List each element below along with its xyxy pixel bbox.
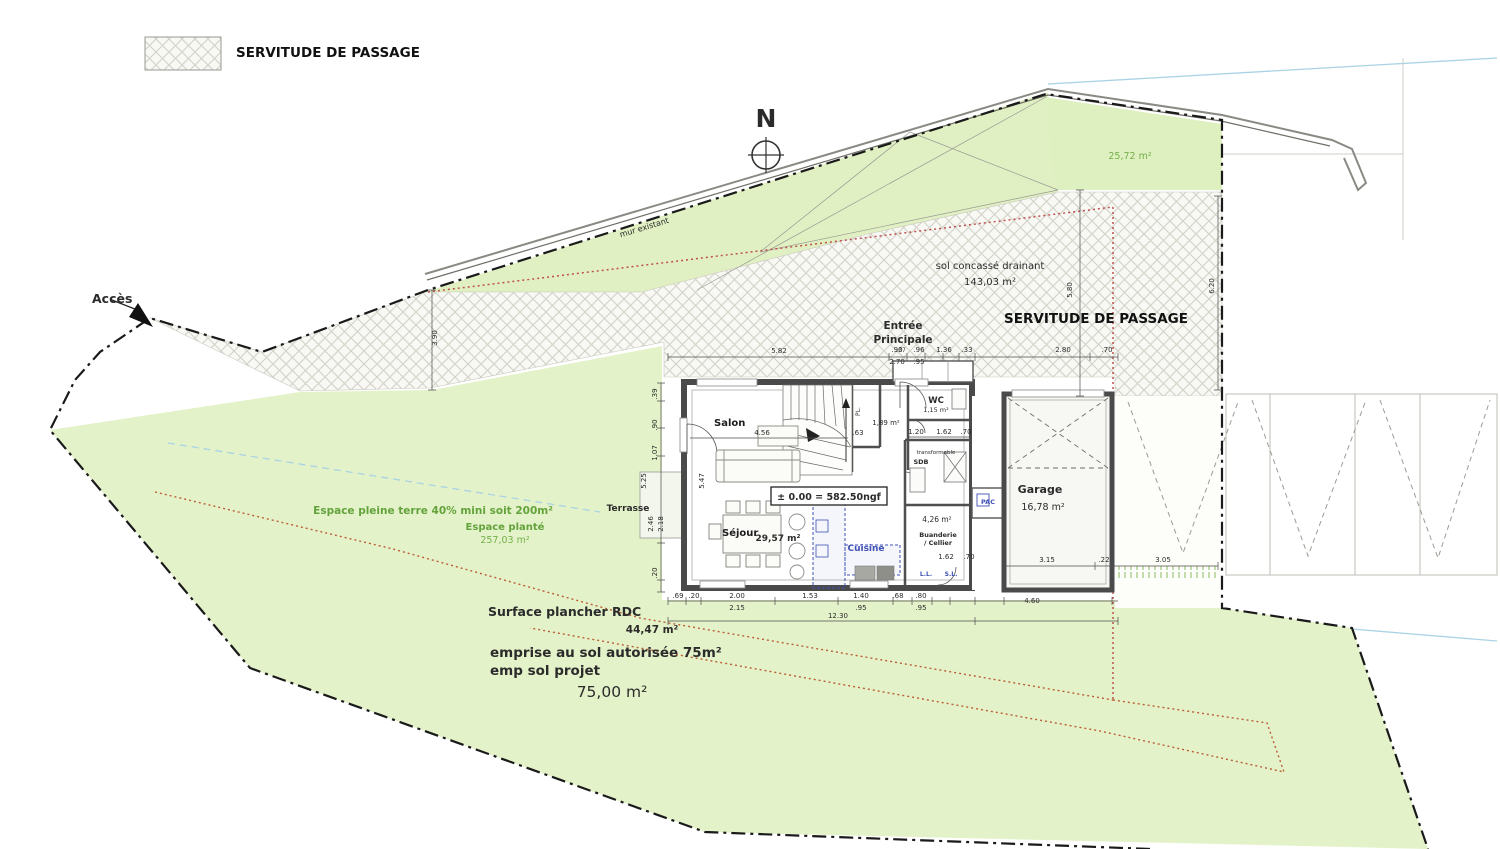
dim-right-2: 3.90 bbox=[431, 330, 439, 346]
lave-linge-label: L.L. bbox=[920, 571, 932, 578]
dim-left-5: 2.18 bbox=[657, 516, 665, 532]
dim-bot-2: 2.00 bbox=[729, 592, 745, 600]
garage-area-label: 16,78 m² bbox=[1021, 502, 1064, 513]
sdb-label: SDB bbox=[913, 458, 928, 466]
dim-left-4: 2.46 bbox=[647, 516, 655, 532]
buanderie-label: Buanderie bbox=[919, 531, 957, 539]
garage-label: Garage bbox=[1018, 483, 1063, 496]
dim-bot-5: 1.40 bbox=[853, 592, 869, 600]
dim-in-5: 1.62 bbox=[938, 553, 954, 561]
dim-in-4: .70 bbox=[960, 428, 971, 436]
dim-bot-6: .95 bbox=[855, 604, 866, 612]
dim-top-0: 5.82 bbox=[771, 347, 787, 355]
sejour-label: Séjour bbox=[722, 527, 758, 539]
dim-top-3: .96 bbox=[913, 346, 925, 354]
servitude-title: SERVITUDE DE PASSAGE bbox=[1004, 311, 1188, 327]
dim-bot-4: 1.53 bbox=[802, 592, 818, 600]
dim-top-8: .70 bbox=[1101, 346, 1112, 354]
wc-label: WC bbox=[928, 396, 944, 406]
site-plan-page: SERVITUDE DE PASSAGE N Accès mur existan… bbox=[0, 0, 1500, 849]
entree-label-1: Entrée bbox=[883, 320, 922, 332]
dim-left-2: 1.07 bbox=[651, 445, 659, 461]
hall-area-label: 1,89 m² bbox=[872, 419, 900, 427]
pac-label: PAC bbox=[981, 498, 995, 506]
espace-plante-area: 257,03 m² bbox=[480, 535, 530, 546]
dim-right-1: 6.20 bbox=[1208, 278, 1216, 294]
dim-bot-3: 2.15 bbox=[729, 604, 745, 612]
dim-left-0: .39 bbox=[651, 388, 659, 399]
dim-left-6: .20 bbox=[651, 567, 659, 578]
dim-top-7: 2.80 bbox=[1055, 346, 1071, 354]
sol-concasse-label: sol concassé drainant bbox=[936, 260, 1045, 272]
dim-in-2: 1.20 bbox=[908, 428, 924, 436]
placard-label: PL. bbox=[855, 407, 862, 416]
emprise-autorisee-label: emprise au sol autorisée 75m² bbox=[490, 645, 722, 661]
cuisine-label: Cuisine bbox=[847, 544, 884, 554]
dim-in-3: 1.62 bbox=[936, 428, 952, 436]
legend-swatch bbox=[145, 37, 221, 70]
emp-sol-area: 75,00 m² bbox=[577, 683, 648, 701]
surface-plancher-area: 44,47 m² bbox=[626, 624, 679, 636]
buanderie-area-label: 4,26 m² bbox=[922, 515, 951, 524]
dim-gar-1: .22 bbox=[1098, 556, 1109, 564]
dim-left-1: .90 bbox=[651, 419, 659, 430]
north-letter: N bbox=[756, 104, 777, 133]
wc-area-label: 1,15 m² bbox=[923, 406, 949, 414]
grass-strip bbox=[1118, 566, 1218, 578]
sol-concasse-area: 143,03 m² bbox=[964, 277, 1016, 288]
garage-door-opening bbox=[1012, 390, 1104, 397]
dim-bot-9: .95 bbox=[915, 604, 926, 612]
surface-plancher-label: Surface plancher RDC bbox=[488, 604, 641, 619]
transformable-note: transformable bbox=[917, 450, 956, 456]
dim-gar-2: 3.05 bbox=[1155, 556, 1171, 564]
espace-plante-label: Espace planté bbox=[466, 521, 545, 533]
emp-sol-projet-label: emp sol projet bbox=[490, 663, 601, 679]
dim-top-1: .90 bbox=[891, 346, 902, 354]
espace-pleine-terre-label: Espace pleine terre 40% mini soit 200m² bbox=[313, 505, 553, 517]
dim-bot-total: 12.30 bbox=[828, 612, 848, 620]
dim-in-0: 4.56 bbox=[754, 429, 770, 437]
dim-top-5: 1.36 bbox=[936, 346, 952, 354]
entree-label-2: Principale bbox=[873, 334, 932, 346]
dim-in-1: .63 bbox=[852, 429, 863, 437]
level-label: ± 0.00 = 582.50ngf bbox=[777, 492, 882, 503]
dim-bot-1: .20 bbox=[688, 592, 699, 600]
dim-bot-8: .80 bbox=[915, 592, 926, 600]
dim-left-3: 5.25 bbox=[640, 473, 648, 489]
acces-label: Accès bbox=[92, 291, 132, 306]
dim-in-6: .70 bbox=[963, 553, 974, 561]
dim-inner-height: 5.47 bbox=[698, 473, 706, 489]
sejour-area-label: 29,57 m² bbox=[756, 534, 801, 544]
area-top-right-label: 25,72 m² bbox=[1108, 151, 1151, 162]
dim-top-4: .95 bbox=[913, 358, 924, 366]
dim-top-2: 2.70 bbox=[889, 358, 905, 366]
dim-right-0: 5.80 bbox=[1066, 282, 1074, 298]
terrasse-label: Terrasse bbox=[607, 504, 650, 514]
dim-top-6: .33 bbox=[961, 346, 972, 354]
legend-label: SERVITUDE DE PASSAGE bbox=[236, 45, 420, 61]
dim-gar-0: 3.15 bbox=[1039, 556, 1055, 564]
seche-linge-label: S.L. bbox=[945, 571, 958, 578]
cellier-label: / Cellier bbox=[924, 539, 953, 547]
salon-label: Salon bbox=[714, 418, 745, 429]
site-plan-drawing: SERVITUDE DE PASSAGE N Accès mur existan… bbox=[0, 0, 1500, 849]
dim-bot-0: .69 bbox=[672, 592, 683, 600]
dim-garage-width: 4.60 bbox=[1024, 597, 1040, 605]
dim-bot-7: .68 bbox=[892, 592, 903, 600]
